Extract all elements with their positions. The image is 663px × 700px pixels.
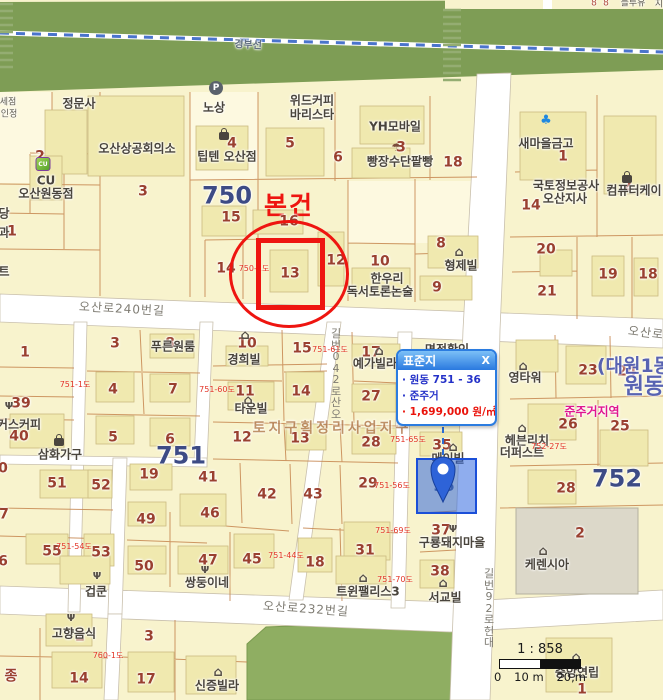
park-area bbox=[247, 620, 458, 700]
scale-tick-10: 10 m bbox=[514, 670, 544, 684]
standard-land-popup: 표준지 X 원동 751 - 36 준주거 1,699,000 원/㎡ bbox=[396, 349, 497, 426]
top-edge-parcels bbox=[445, 0, 663, 9]
scalebar-ticks: 0 10 m 20,m bbox=[494, 670, 586, 684]
popup-line-address: 원동 751 - 36 bbox=[402, 373, 491, 388]
scalebar-bar bbox=[499, 659, 581, 669]
map-scalebar: 1 : 858 0 10 m 20,m bbox=[494, 642, 586, 684]
popup-body: 원동 751 - 36 준주거 1,699,000 원/㎡ bbox=[398, 370, 495, 424]
scale-ratio: 1 : 858 bbox=[494, 642, 586, 657]
popup-title-bar: 표준지 X bbox=[398, 351, 495, 370]
large-building-footprint bbox=[516, 508, 638, 594]
subject-highlight-rect bbox=[256, 238, 325, 310]
top-edge-road-gap bbox=[543, 0, 552, 9]
map-base-layer bbox=[0, 0, 663, 700]
map-pin-icon[interactable] bbox=[427, 452, 459, 504]
popup-title: 표준지 bbox=[403, 352, 436, 369]
popup-connector-line bbox=[442, 427, 444, 455]
scalebar-black-segment bbox=[540, 660, 580, 668]
scale-tick-20: 20,m bbox=[556, 670, 586, 684]
scale-tick-0: 0 bbox=[494, 670, 501, 684]
popup-line-zoning: 준주거 bbox=[402, 389, 491, 404]
popup-close-button[interactable]: X bbox=[482, 354, 490, 367]
cadastral-map[interactable]: 88블루유지경부선정문사노상위드커피바리스타오산상공회의소4팁텐 오산점56YH… bbox=[0, 0, 663, 700]
scalebar-white-segment bbox=[500, 660, 540, 668]
popup-line-price: 1,699,000 원/㎡ bbox=[402, 405, 491, 420]
